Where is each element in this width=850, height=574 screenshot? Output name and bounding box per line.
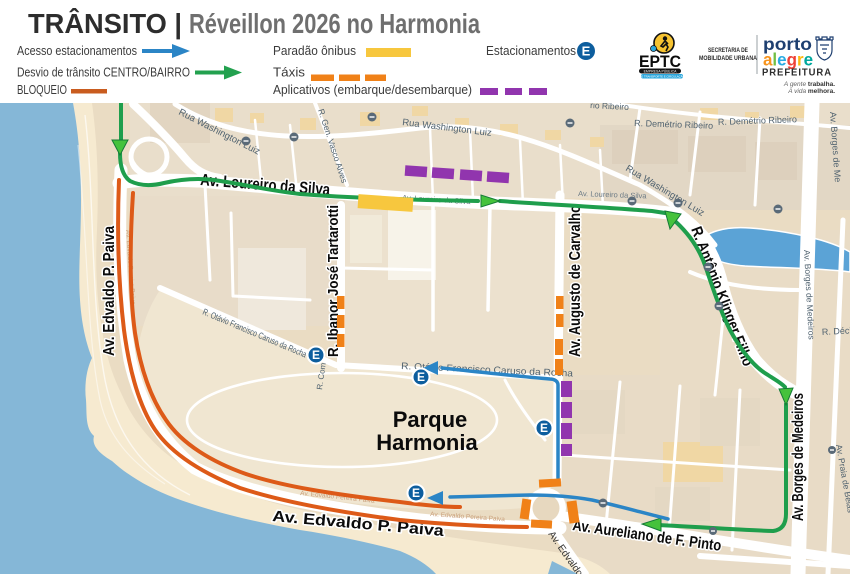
svg-text:TRÂNSITO |: TRÂNSITO | xyxy=(28,8,182,39)
svg-text:PREFEITURA: PREFEITURA xyxy=(762,68,832,79)
svg-text:Acesso estacionamentos: Acesso estacionamentos xyxy=(17,44,137,58)
svg-text:Paradão ônibus: Paradão ônibus xyxy=(273,44,356,58)
svg-text:EPTC: EPTC xyxy=(639,52,681,71)
svg-text:SECRETARIA DE: SECRETARIA DE xyxy=(708,47,748,54)
svg-text:Táxis: Táxis xyxy=(273,66,305,80)
svg-text:Réveillon 2026 no Harmonia: Réveillon 2026 no Harmonia xyxy=(189,8,480,39)
svg-text:Estacionamentos: Estacionamentos xyxy=(486,44,576,58)
svg-text:alegre: alegre xyxy=(763,50,813,70)
svg-text:Aplicativos (embarque/desembar: Aplicativos (embarque/desembarque) xyxy=(273,83,472,97)
svg-text:E: E xyxy=(412,486,420,500)
svg-text:A gente trabalha.: A gente trabalha. xyxy=(783,81,835,88)
svg-text:EMPRESA PÚBLICA: EMPRESA PÚBLICA xyxy=(644,70,678,74)
svg-text:Harmonia: Harmonia xyxy=(376,430,478,455)
svg-text:Av. Edvaldo P. Paiva: Av. Edvaldo P. Paiva xyxy=(101,226,118,356)
svg-text:MOBILIDADE URBANA: MOBILIDADE URBANA xyxy=(699,55,757,62)
svg-text:DE TRANSPORTE E CIRCULAÇÃO: DE TRANSPORTE E CIRCULAÇÃO xyxy=(639,74,685,79)
svg-text:E: E xyxy=(582,44,591,59)
svg-text:rio Ribeiro: rio Ribeiro xyxy=(590,100,629,112)
svg-text:E: E xyxy=(540,421,548,435)
svg-text:Parque: Parque xyxy=(393,407,468,432)
svg-text:BLOQUEIO: BLOQUEIO xyxy=(17,83,67,97)
svg-text:E: E xyxy=(312,348,320,362)
svg-text:Av. Augusto de Carvalho: Av. Augusto de Carvalho xyxy=(567,205,584,357)
svg-text:A vida melhora.: A vida melhora. xyxy=(787,88,835,95)
svg-text:Av. Borges de Medeiros: Av. Borges de Medeiros xyxy=(790,393,807,521)
svg-text:E: E xyxy=(417,370,425,384)
svg-text:R. Décio: R. Décio xyxy=(822,325,850,337)
svg-text:Desvio de trânsito CENTRO/BAIR: Desvio de trânsito CENTRO/BAIRRO xyxy=(17,66,190,80)
